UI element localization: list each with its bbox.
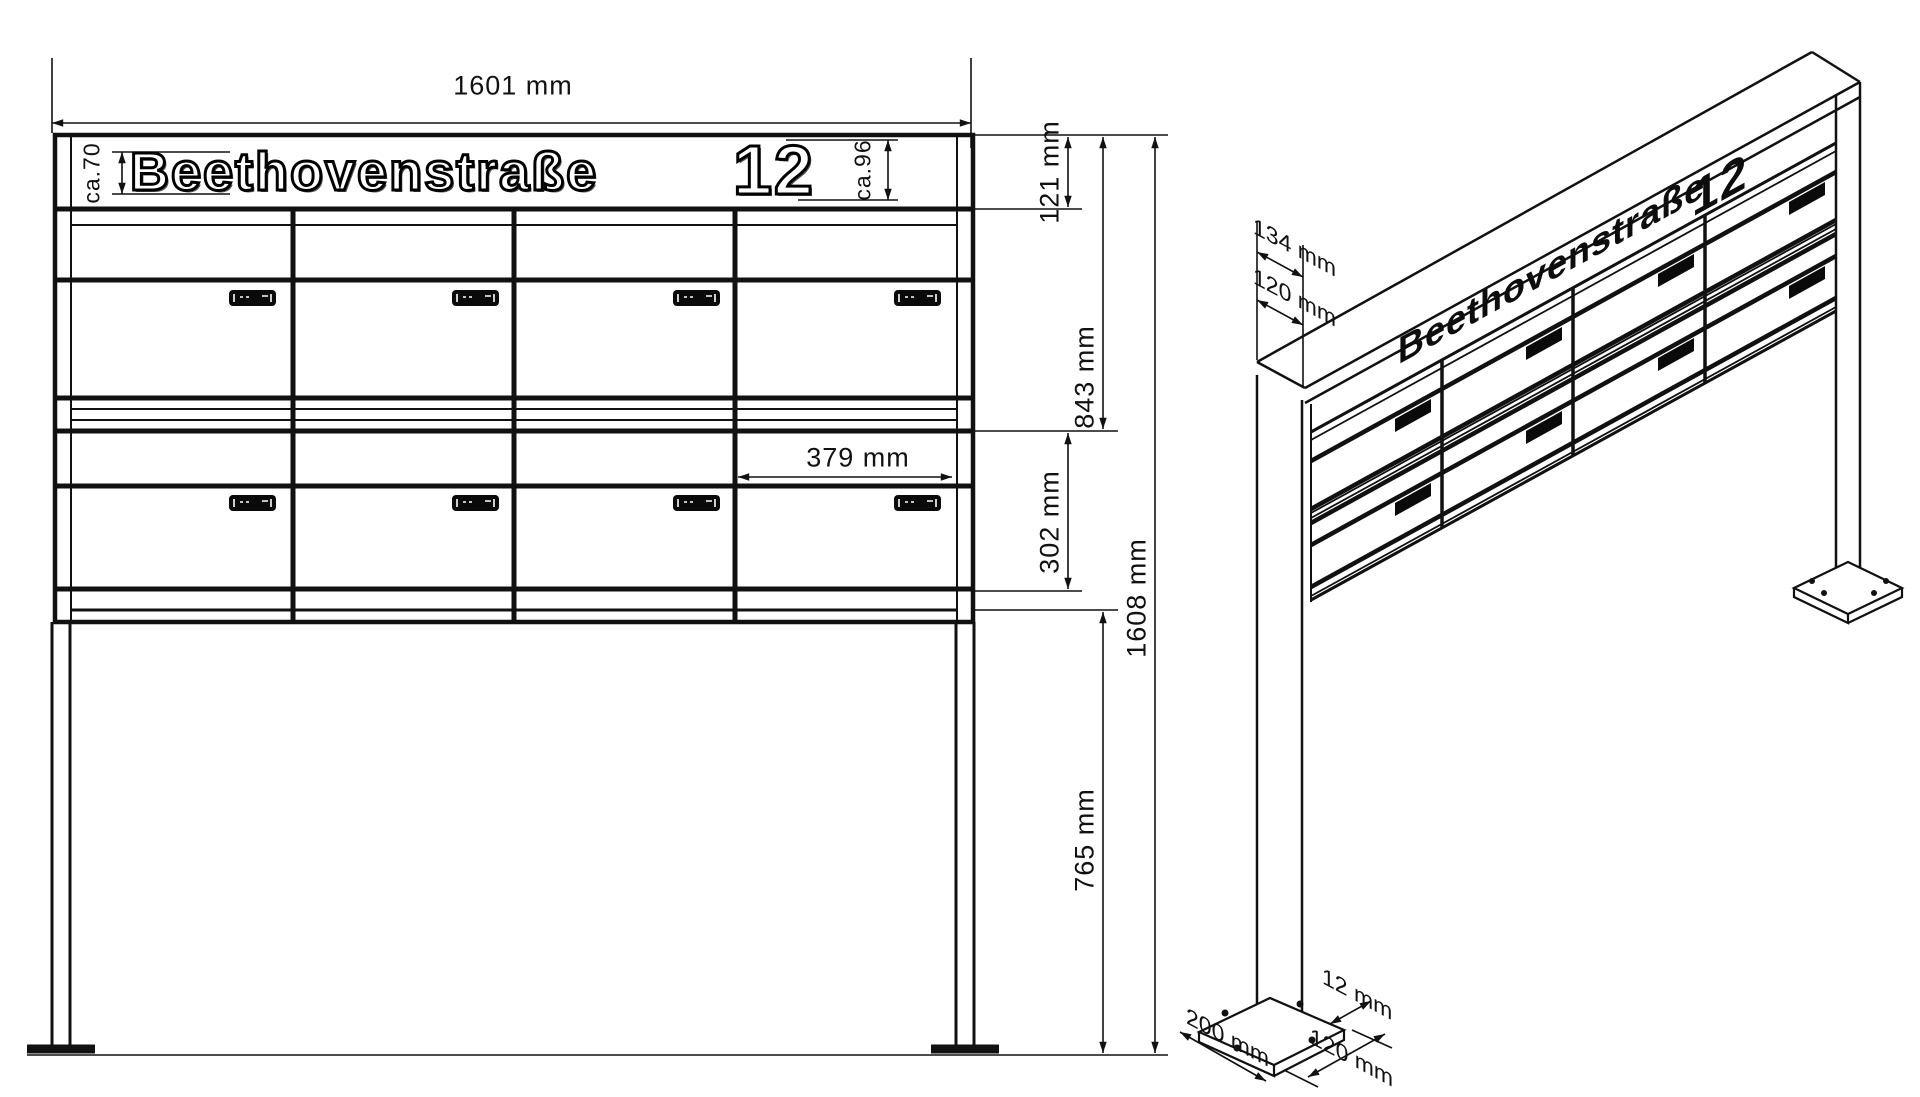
iso-view-feet: [1199, 562, 1902, 1076]
iso-view-structure: [1257, 52, 1860, 1022]
dim-leg-height-label: 765 mm: [1070, 788, 1101, 892]
front-nameplate-street: Beethovenstraße: [130, 141, 598, 203]
dim-number-height-label: ca.96: [850, 139, 877, 200]
dim-box-width-label: 379 mm: [806, 443, 910, 474]
dim-total-height-label: 1608 mm: [1122, 538, 1153, 658]
front-view-box: [55, 135, 973, 622]
front-nameplate-number: 12: [733, 130, 815, 210]
front-view-legs: [27, 622, 1168, 1055]
mailbox-technical-drawing: Beethovenstraße 12 1601 mm ca.70 ca.96 1…: [0, 0, 1920, 1097]
iso-view-dimensions: [1180, 222, 1392, 1087]
dim-box-height-label: 843 mm: [1070, 325, 1101, 429]
dim-total-width-label: 1601 mm: [453, 71, 573, 102]
dim-row2-height-label: 302 mm: [1035, 470, 1066, 574]
dim-text-height-label: ca.70: [79, 142, 106, 203]
dim-nameplate-row-label: 121 mm: [1035, 120, 1066, 224]
